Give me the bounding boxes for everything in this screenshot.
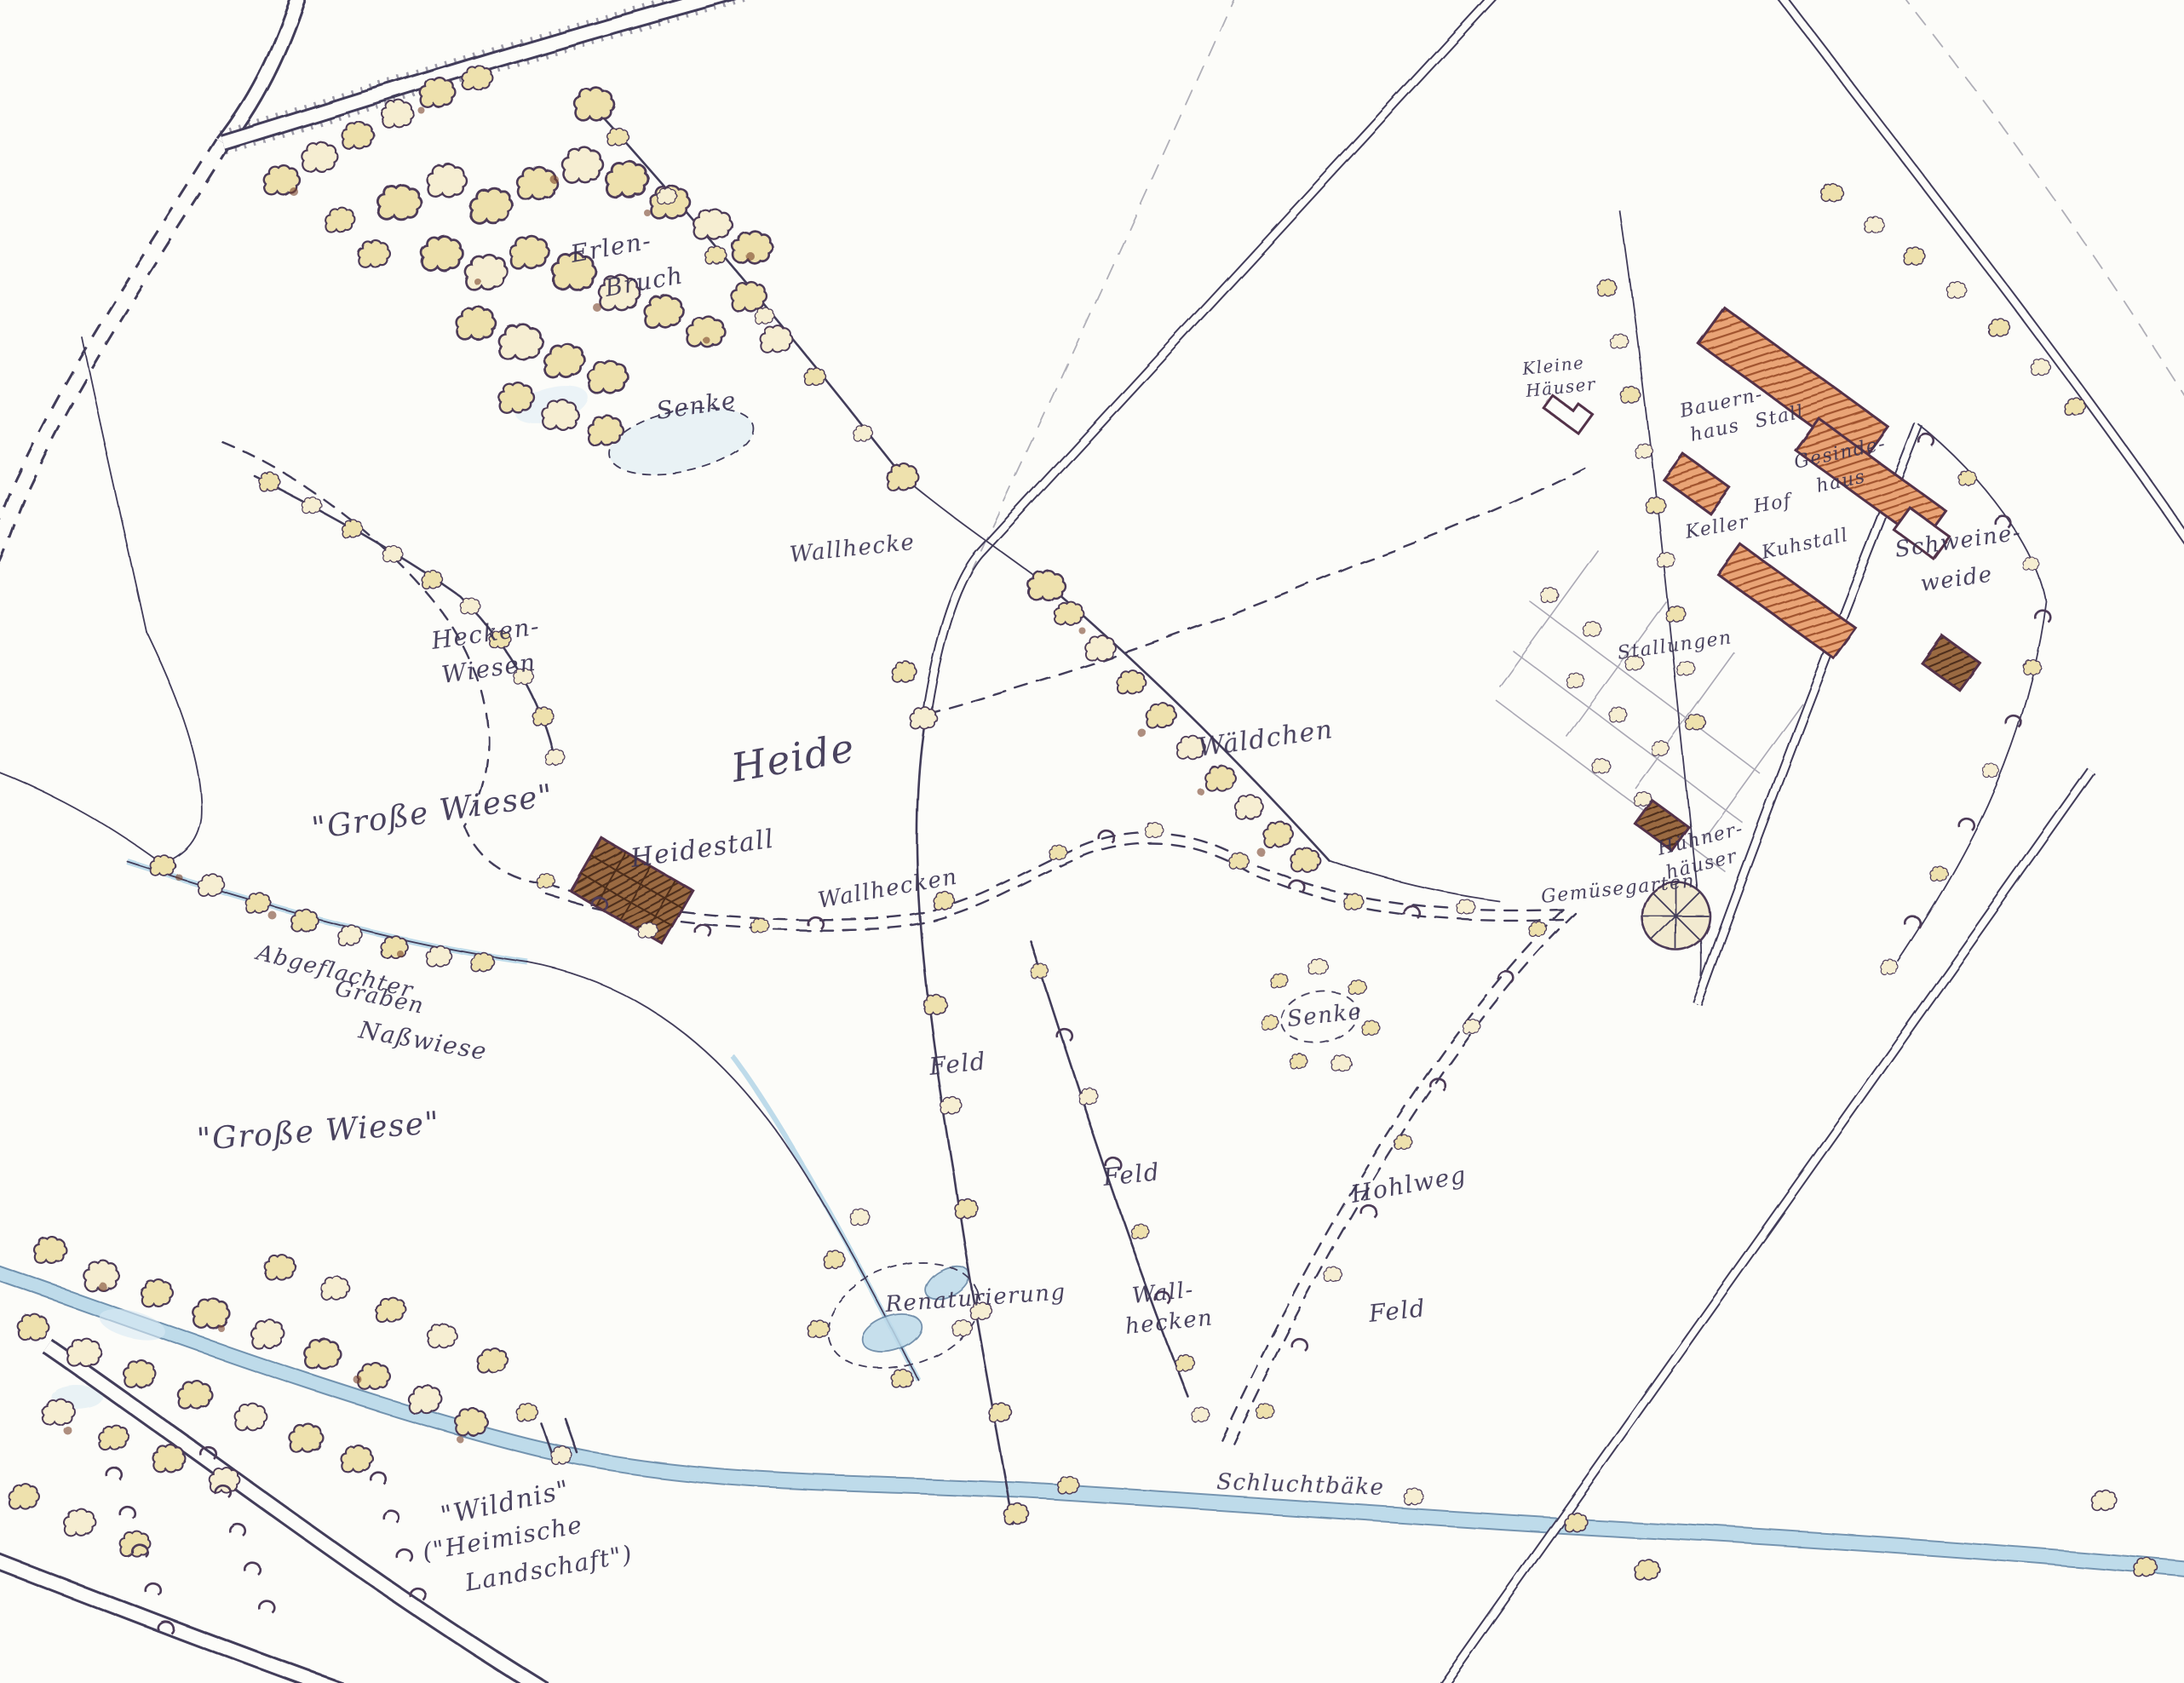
ditch-graben	[51, 862, 992, 1409]
label-keller: Keller	[1683, 511, 1751, 543]
label-wallhecken-south: Wall-	[1131, 1278, 1196, 1309]
label-grosse-wiese-south: "Große Wiese"	[196, 1106, 441, 1157]
label-schweineweide: weide	[1919, 561, 1995, 597]
wet-depressions	[511, 379, 1362, 1049]
label-bauernhaus: Bauern-	[1677, 384, 1765, 422]
building-kuhstall	[1718, 544, 1856, 658]
label-heide: Heide	[727, 724, 859, 791]
label-feld-3: Feld	[1366, 1294, 1427, 1328]
label-stallungen: Stallungen	[1616, 627, 1733, 664]
label-feld-1: Feld	[927, 1047, 987, 1081]
label-bauernhaus: haus	[1688, 415, 1742, 446]
label-waeldchen: Wäldchen	[1196, 715, 1335, 763]
building-schweine-hut	[1922, 635, 1980, 690]
label-heidestall: Heidestall	[628, 824, 776, 874]
scanned-landscape-plan: Erlen- Bruch Senke Wallhecke Hecken- Wie…	[0, 0, 2184, 1683]
stream-schluchtbaeke	[0, 1263, 2184, 1577]
label-erlen-bruch: Erlen-	[568, 227, 654, 268]
track-hedges	[537, 661, 1547, 1525]
streamside-trees	[517, 1209, 2158, 1580]
label-grosse-wiese-north: "Große Wiese"	[310, 778, 556, 847]
site-plan-map: Erlen- Bruch Senke Wallhecke Hecken- Wie…	[0, 0, 2184, 1683]
label-stall: Stall	[1753, 401, 1807, 433]
label-erlen-bruch: Bruch	[602, 261, 687, 302]
label-feld-2: Feld	[1101, 1157, 1161, 1192]
waeldchen-band	[886, 463, 1320, 872]
label-hof: Hof	[1751, 490, 1796, 518]
label-wallhecke-north: Wallhecke	[789, 530, 917, 568]
label-senke-south: Senke	[1286, 999, 1364, 1032]
map-labels: Erlen- Bruch Senke Wallhecke Hecken- Wie…	[196, 227, 2023, 1597]
farm-trees	[1541, 184, 2085, 974]
label-wallhecken-south: hecken	[1124, 1305, 1215, 1340]
label-kuhstall: Kuhstall	[1759, 525, 1851, 564]
label-nasswiese: Naßwiese	[356, 1015, 490, 1066]
building-keller	[1664, 454, 1729, 514]
